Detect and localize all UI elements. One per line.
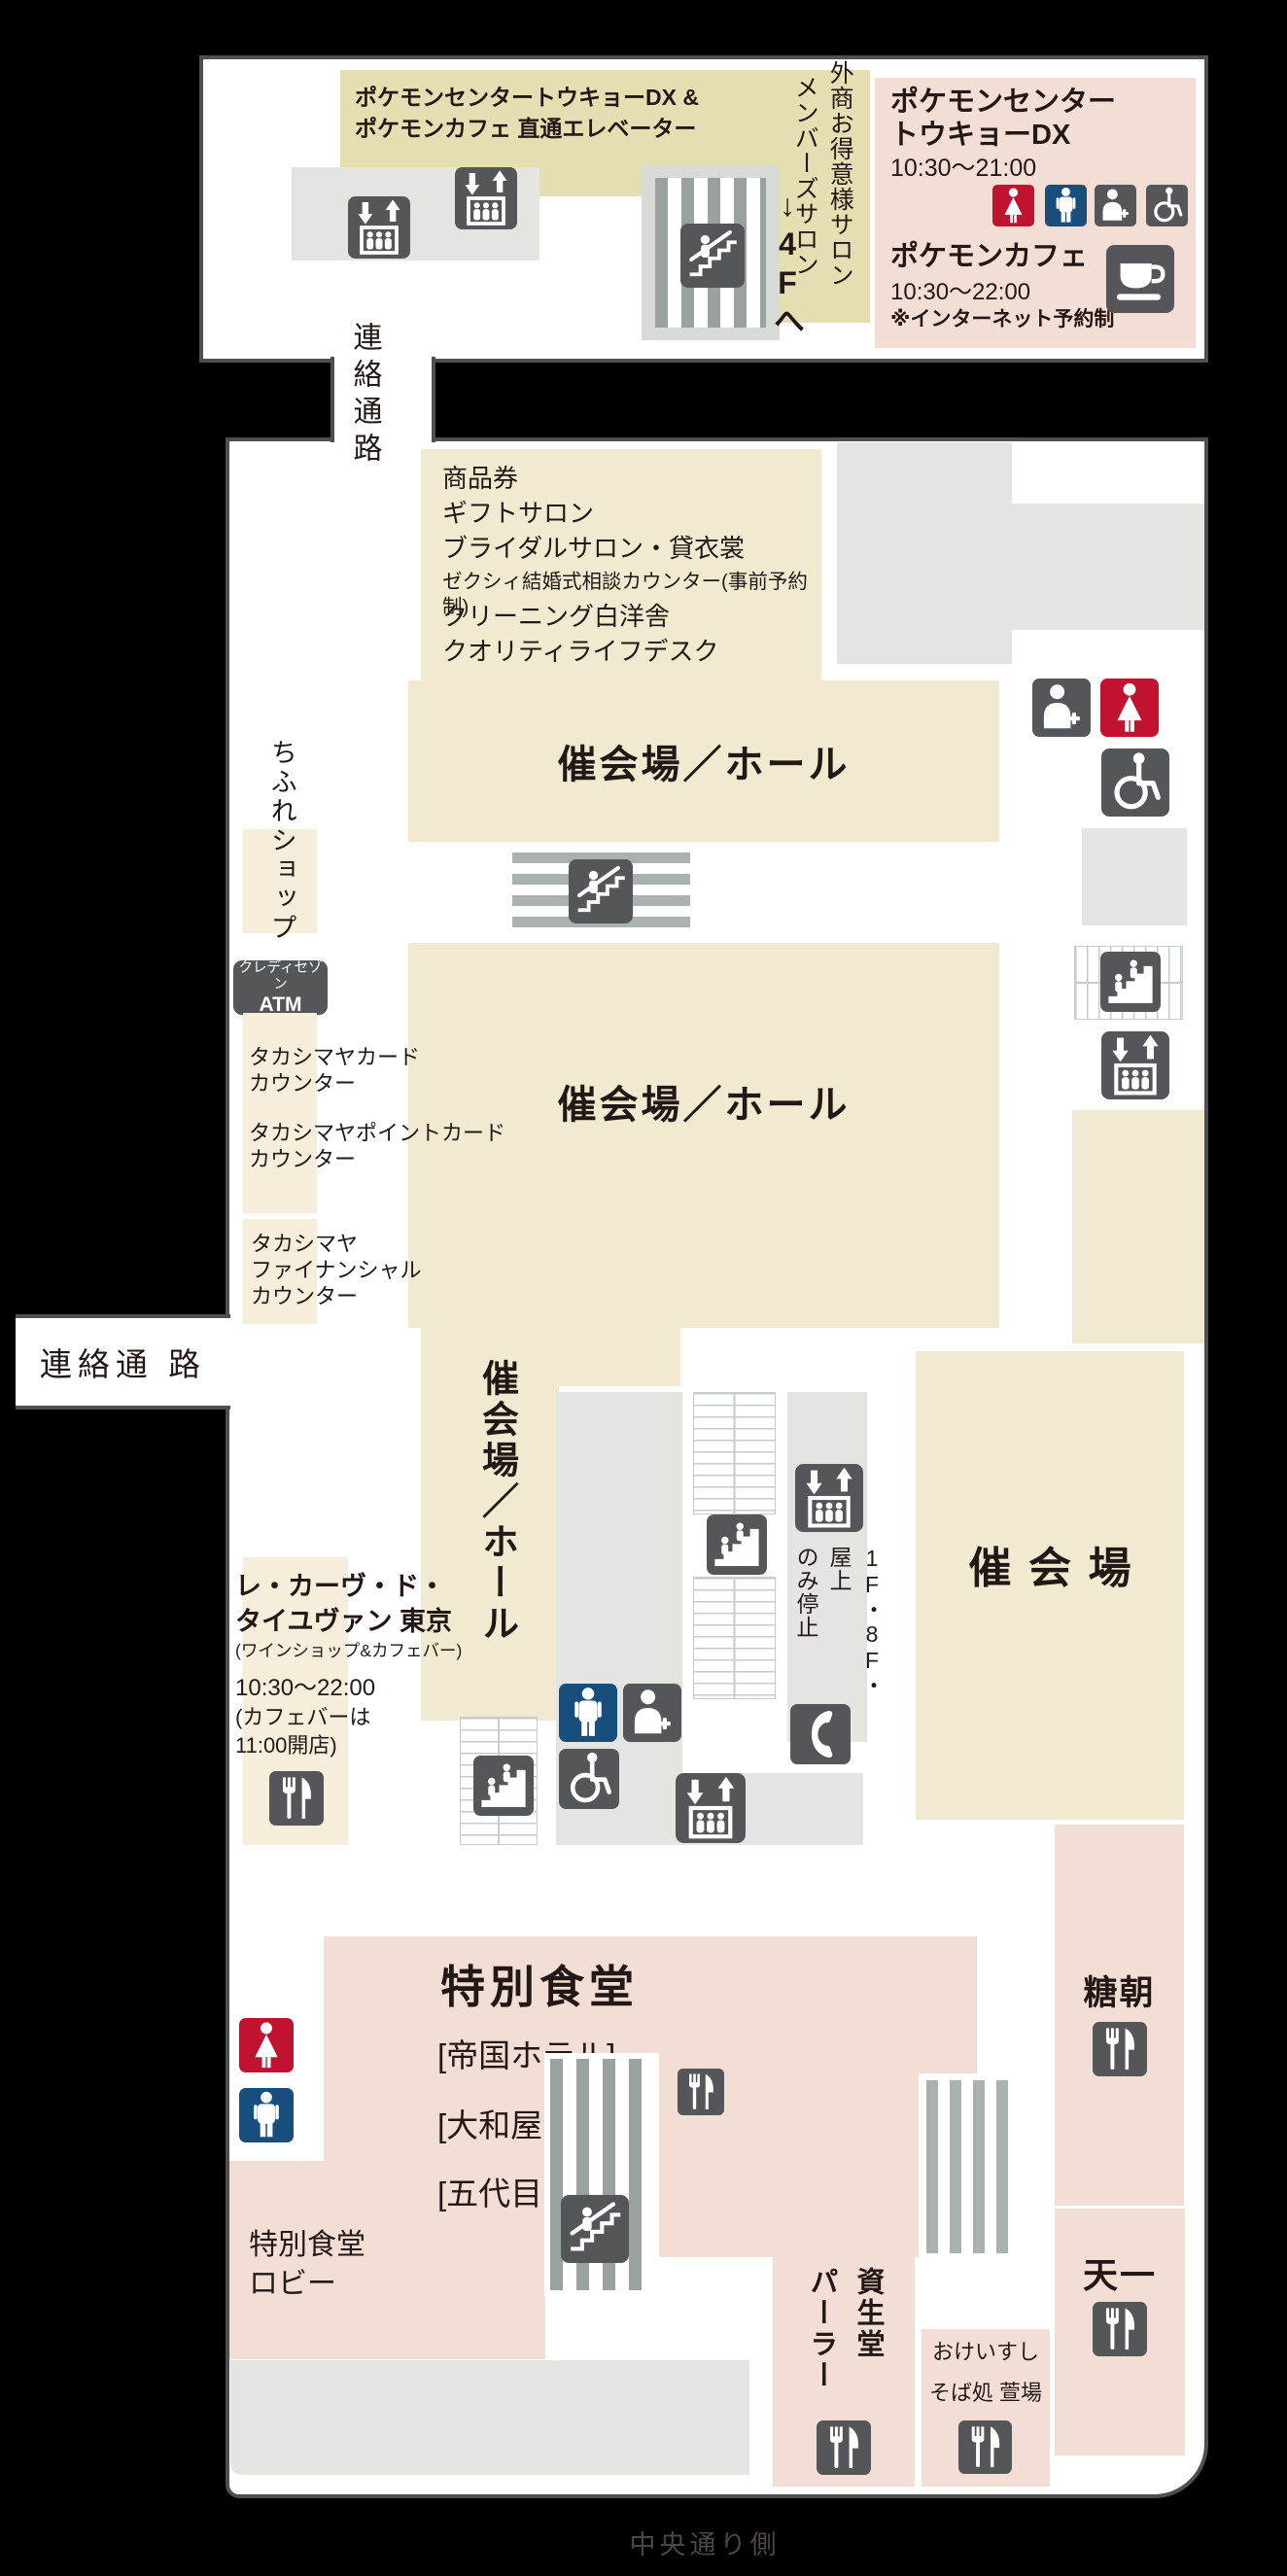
backyard-area: [230, 2360, 749, 2475]
escalator-icon: [680, 224, 745, 288]
credit-saison-atm: クレディセゾン ATM: [233, 960, 328, 1015]
atm-brand-label: クレディセゾン: [233, 960, 328, 993]
card-counter-area: [243, 1013, 317, 1213]
womens-restroom-icon: [239, 2018, 294, 2072]
annex-building: ポケモンセンタートウキョーDX & ポケモンカフェ 直通エレベーター ↓4Fへ …: [199, 55, 1208, 363]
nursing-room-icon: [623, 1684, 681, 1742]
stairs-icon: [707, 1514, 767, 1575]
tenichi-label: 天一: [1055, 2253, 1185, 2297]
mens-restroom-icon: [1045, 185, 1087, 226]
taillevent-sub: (ワインショップ&カフェバー): [235, 1641, 462, 1662]
pokemon-cafe-hours: 10:30～22:00: [890, 278, 1030, 307]
service-item: クリーニング白洋舎: [442, 601, 670, 633]
service-item: 商品券: [442, 463, 518, 495]
elevator-icon: [455, 167, 517, 229]
event-hall-label: 催会場／ホール: [558, 733, 851, 789]
elevator-icon: [795, 1464, 863, 1532]
utility-area: [1082, 828, 1187, 925]
stairs-steps: [926, 2080, 1018, 2253]
womens-restroom-icon: [1100, 679, 1159, 737]
tenichi-area: 天一: [1055, 2209, 1185, 2455]
stairs-area: [693, 1392, 776, 1514]
escalator-icon: [569, 859, 633, 923]
pokemon-cafe-name: ポケモンカフェ: [890, 239, 1088, 274]
service-item: ギフトサロン: [442, 498, 594, 530]
point-card-counter-label: タカシマヤポイントカード カウンター: [249, 1120, 505, 1172]
pokemon-center-area: ポケモンセンター トウキョーDX 10:30～21:00 ポケモンカフェ 10:…: [875, 78, 1196, 348]
okei-sushi-label: おけいすし: [922, 2339, 1050, 2366]
services-area: 商品券 ギフトサロン ブライダルサロン・貸衣裳 ゼクシィ結婚式相談カウンター(事…: [421, 449, 821, 685]
nursing-room-icon: [1032, 679, 1091, 737]
wheelchair-accessible-icon: [1101, 748, 1169, 817]
mens-restroom-icon: [559, 1684, 617, 1742]
mens-restroom-icon: [239, 2088, 294, 2142]
shiseido-parlour-area: 資生堂 パーラー: [773, 2253, 915, 2487]
main-building: 商品券 ギフトサロン ブライダルサロン・貸衣裳 ゼクシィ結婚式相談カウンター(事…: [226, 437, 1208, 2498]
tocho-area: 糖朝: [1055, 1825, 1184, 2206]
restaurant-icon: [1093, 2302, 1147, 2356]
cafe-icon: [1106, 245, 1174, 313]
tocho-label: 糖朝: [1055, 1972, 1184, 2015]
escalator-icon: [561, 2195, 629, 2263]
okei-sushi-soba-area: おけいすし そば処 萱場: [922, 2329, 1050, 2487]
financial-counter-label: タカシマヤ ファイナンシャル カウンター: [251, 1231, 422, 1309]
direct-elevator-label: ポケモンセンタートウキョーDX & ポケモンカフェ 直通エレベーター: [355, 82, 860, 144]
gaisho-salon-label: 外商お得意様サロン: [824, 60, 854, 332]
event-hall-label-vertical: 催会場／ホール: [472, 1359, 519, 1709]
members-salon-label: メンバーズサロン: [789, 75, 819, 318]
service-item: ブライダルサロン・貸衣裳: [442, 533, 745, 565]
service-item: クオリティライフデスク: [442, 636, 718, 668]
public-phone-icon: [790, 1704, 851, 1764]
floor-map: ポケモンセンタートウキョーDX & ポケモンカフェ 直通エレベーター ↓4Fへ …: [0, 0, 1287, 2576]
back-corridor: [1011, 504, 1205, 630]
elevator-icon: [1101, 1031, 1169, 1099]
event-hall-right: 催会場: [916, 1351, 1184, 1820]
corridor-vertical-label: 連絡通路: [346, 322, 383, 501]
special-dining-lobby-label: 特別食堂 ロビー: [249, 2226, 365, 2304]
stairs-area: [693, 1577, 776, 1699]
womens-restroom-icon: [992, 185, 1034, 226]
event-hall-band-1: 催会場／ホール: [408, 680, 999, 842]
soba-label: そば処 萱場: [922, 2380, 1050, 2407]
restaurant-icon: [817, 2420, 871, 2475]
restaurant-icon: [678, 2069, 724, 2115]
pokemon-center-hours: 10:30～21:00: [890, 154, 1036, 184]
event-hall-label: 催会場: [916, 1542, 1184, 1595]
chifure-shop-label: ちふれショップ: [264, 739, 297, 953]
elevator-stop-note: 1F・8F・屋上 のみ停止: [789, 1546, 888, 1711]
taillevent-hours: 10:30～22:00: [235, 1674, 375, 1703]
wheelchair-accessible-icon: [1146, 185, 1188, 226]
elevator-icon: [676, 1773, 746, 1843]
wheelchair-accessible-icon: [559, 1749, 619, 1809]
takashimaya-card-counter-label: タカシマヤカード カウンター: [249, 1044, 420, 1097]
street-side-label: 中央通り側: [583, 2529, 826, 2562]
shiseido-parlour-label: 資生堂 パーラー: [798, 2267, 891, 2432]
stairs-icon: [1100, 952, 1161, 1012]
taillevent-name: レ・カーヴ・ド・ タイユヴァン 東京: [235, 1569, 452, 1639]
special-dining-title: 特別食堂: [440, 1960, 639, 2016]
pokemon-center-name: ポケモンセンター トウキョーDX: [890, 86, 1116, 152]
restaurant-icon: [269, 1771, 324, 1826]
connector-corridor-horizontal: 連絡通 路: [16, 1314, 230, 1410]
service-corridor: [837, 442, 1012, 664]
nursing-room-icon: [1095, 185, 1136, 226]
taillevent-note: (カフェバーは 11:00開店): [235, 1703, 370, 1759]
right-hall-area: [1072, 1110, 1205, 1343]
restaurant-icon: [1093, 2022, 1147, 2076]
restaurant-icon: [958, 2420, 1012, 2474]
corridor-horizontal-label: 連絡通 路: [40, 1339, 206, 1385]
stairs-icon: [473, 1756, 534, 1816]
pokemon-cafe-note: ※インターネット予約制: [890, 307, 1114, 332]
elevator-icon: [348, 196, 410, 259]
